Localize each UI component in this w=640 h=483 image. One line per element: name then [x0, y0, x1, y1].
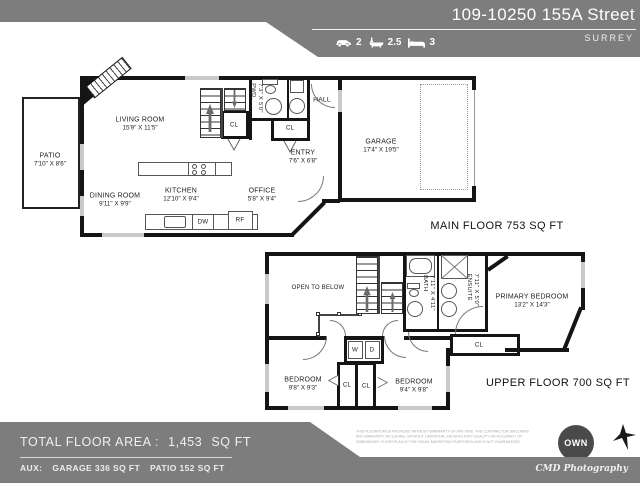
stair-closet-top-wall	[221, 111, 249, 113]
living-room-label: LIVING ROOM15'9" X 11'5"	[116, 117, 165, 132]
ensuite-sink	[441, 283, 457, 299]
stove-burner	[201, 170, 206, 175]
stair-closet-label: CL	[230, 122, 238, 129]
powder-label: PWD.7'3" X 5'0"	[249, 83, 263, 113]
footer-band: TOTAL FLOOR AREA : 1,453 SQ FT AUX: GARA…	[0, 422, 640, 483]
bedroom-left-bottom-window	[288, 406, 324, 410]
stair-up-arrow-icon	[389, 292, 396, 312]
washer-label: W	[352, 347, 358, 354]
stair-up-arrow-icon	[206, 104, 214, 132]
pwd-sink	[265, 98, 282, 115]
aux-garage: GARAGE 336 SQ FT	[52, 463, 140, 473]
wd-door-arc	[382, 320, 398, 336]
primary-closet-outline	[450, 334, 520, 356]
primary-bedroom-label: PRIMARY BEDROOM13'2" X 14'3"	[496, 294, 569, 309]
closet-wall-3	[373, 362, 376, 410]
header-band: 109-10250 155A Street SURREY 2 2.5 3	[0, 0, 640, 57]
floorplan-page: 109-10250 155A Street SURREY 2 2.5 3	[0, 0, 640, 483]
kitchen-sink	[164, 216, 186, 228]
ensuite-primary-wall	[485, 252, 488, 332]
total-area-line: TOTAL FLOOR AREA : 1,453 SQ FT	[20, 435, 251, 449]
entry-closet-left-wall	[271, 118, 274, 140]
railing-post	[316, 312, 320, 316]
aux-label: AUX:	[20, 463, 42, 473]
upper-floor-title: UPPER FLOOR 700 SQ FT	[486, 377, 630, 389]
disclaimer-text: THIS FLOORPLAN IS PROVIDED WITHOUT WARRA…	[356, 429, 532, 445]
bed-stat: 3	[408, 37, 435, 48]
kitchen-label: KITCHEN12'10" X 9'4"	[163, 188, 199, 203]
bedroom-right-door-arc	[384, 336, 406, 358]
stove-burner	[192, 170, 197, 175]
bedroom-right-label: BEDROOM9'4" X 9'8"	[395, 379, 433, 394]
office-label: OFFICE5'8" X 9'4"	[248, 188, 277, 203]
shower-x-icon	[441, 255, 468, 279]
garage-right-wall-bottom	[472, 186, 476, 202]
open-below-window	[265, 274, 269, 304]
ensuite-sink	[441, 301, 457, 317]
closet-door-marker	[227, 139, 241, 151]
header-divider	[312, 29, 636, 30]
main-floor-title: MAIN FLOOR 753 SQ FT	[430, 220, 563, 232]
garage-bottom-wall	[338, 198, 476, 202]
bath-ensuite-wall	[437, 252, 439, 330]
car-icon	[335, 38, 352, 48]
kitchen-upper-counter	[138, 162, 232, 176]
bedroom-right-bottom-window	[398, 406, 432, 410]
bedroom-left-label: BEDROOM9'8" X 9'3"	[284, 377, 322, 392]
patio-label: PATIO7'10" X 8'6"	[34, 153, 66, 168]
stair-down-arrow-icon	[231, 90, 238, 108]
stove-burner	[201, 164, 206, 169]
closet-door-marker	[328, 375, 339, 387]
bath-icon	[369, 37, 384, 48]
railing-post	[316, 332, 320, 336]
garage-stat: 2	[335, 37, 362, 48]
own-logo-text: OWN	[564, 438, 588, 448]
stair-up-arrow-icon	[363, 286, 371, 312]
hall-wall-b	[344, 336, 384, 340]
hall-label: HALL	[313, 97, 331, 104]
primary-window	[581, 262, 585, 288]
garage-door-gap	[338, 90, 342, 112]
photography-credit: CMD Photography	[536, 464, 628, 474]
entry-label: ENTRY7'6" X 6'8"	[289, 150, 318, 165]
wd-right-wall	[381, 336, 384, 364]
entry-diagonal-wall	[291, 201, 326, 236]
garage-label: GARAGE17'4" X 19'5"	[363, 139, 399, 154]
bed-count: 3	[429, 37, 435, 48]
property-address: 109-10250 155A Street	[452, 5, 635, 25]
primary-closet-label: CL	[475, 342, 483, 349]
bath-count: 2.5	[388, 37, 402, 48]
pwd-toilet-bowl	[265, 85, 276, 94]
bedroom-left-window	[265, 364, 269, 392]
total-area-unit: SQ FT	[211, 435, 251, 449]
fridge-label: RF	[236, 217, 245, 224]
primary-corner-diagonal	[487, 255, 509, 272]
garage-right-wall-top	[472, 76, 476, 90]
closet-right-label: CL	[362, 383, 370, 390]
dining-room-label: DINING ROOM9'11" X 9'9"	[90, 193, 140, 208]
bed-icon	[408, 38, 425, 48]
bath-door-arc	[408, 332, 428, 352]
garage-door-line	[474, 90, 475, 186]
footer-divider	[20, 457, 232, 458]
bath-toilet-bowl	[409, 289, 419, 297]
garage-apron-dotted	[420, 84, 468, 190]
railing-post	[337, 312, 341, 316]
hall-left-wall	[307, 76, 310, 140]
bathtub-inner	[409, 258, 432, 274]
stove-burner	[192, 164, 197, 169]
closet-door-marker	[378, 377, 389, 389]
dryer-label: D	[370, 347, 375, 354]
furnace-box	[290, 80, 304, 93]
property-stats: 2 2.5 3	[335, 37, 435, 48]
patio-door-window	[80, 144, 84, 170]
aux-area-line: AUX: GARAGE 336 SQ FT PATIO 152 SQ FT	[20, 463, 225, 473]
front-door-arc	[298, 176, 324, 202]
own-logo: OWN	[558, 425, 594, 461]
dining-bottom-window	[102, 233, 144, 237]
stair-closet-right-wall	[246, 111, 249, 138]
living-window	[185, 76, 219, 80]
total-area-label: TOTAL FLOOR AREA :	[20, 435, 159, 449]
garage-count: 2	[356, 37, 362, 48]
bedroom-left-door-arc	[303, 336, 327, 360]
upper-stairs-rail	[378, 256, 380, 314]
wd-left-wall	[344, 336, 347, 364]
bedroom-right-window	[446, 366, 450, 392]
primary-diagonal-wall	[562, 307, 583, 352]
total-area-value: 1,453	[168, 435, 202, 449]
pwd-bottom-wall	[249, 118, 309, 121]
bath-label: BATH7'11" X 4'11"	[421, 275, 435, 311]
property-city: SURREY	[584, 33, 634, 43]
dining-window	[80, 196, 84, 216]
water-heater	[289, 98, 305, 114]
closet-left-label: CL	[343, 382, 351, 389]
bath-stat: 2.5	[369, 37, 402, 48]
wd-door-arc	[330, 320, 346, 336]
closet-wall-2	[355, 362, 358, 410]
entry-closet-label: CL	[286, 125, 294, 132]
ensuite-label: ENSUITE7'11" X 5'0"	[465, 274, 479, 307]
aux-patio: PATIO 152 SQ FT	[150, 463, 225, 473]
dishwasher-label: DW	[198, 219, 209, 226]
primary-door-arc	[455, 306, 483, 334]
open-to-below-label: OPEN TO BELOW	[292, 285, 345, 291]
bird-logo-icon	[610, 424, 636, 452]
main-stairs-rail	[221, 88, 223, 138]
pwd-mech-wall	[287, 76, 289, 120]
